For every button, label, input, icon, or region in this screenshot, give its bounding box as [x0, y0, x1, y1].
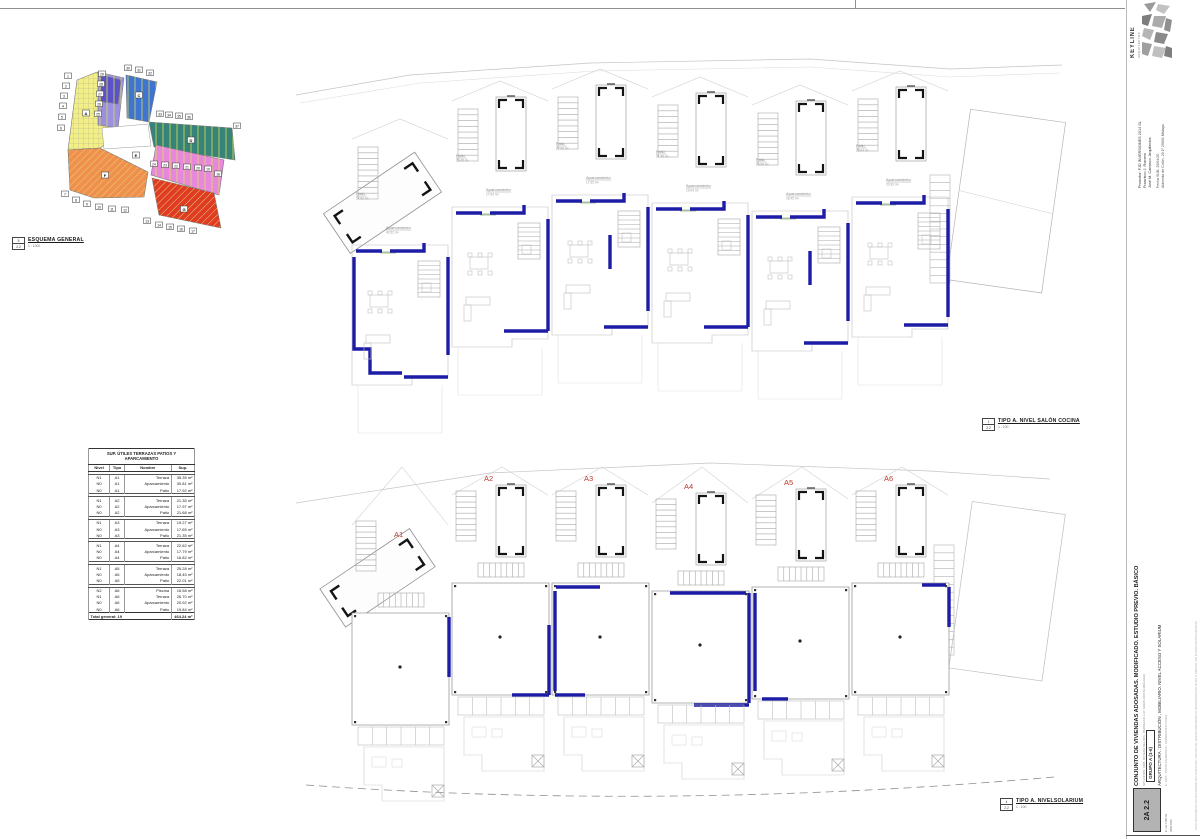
esquema-ref-box: 5 2.2: [12, 237, 25, 250]
logo-mosaic-icon: [1142, 2, 1172, 58]
svg-text:3: 3: [63, 94, 65, 98]
plan1-unit-a2: Patio23.45 m²Aparcamiento17.54 m²: [452, 81, 548, 395]
parking-space: [896, 86, 926, 161]
stairs: [878, 563, 924, 577]
sheet-top-tick: [855, 0, 856, 8]
siteplan-patio-central: [102, 124, 151, 149]
parking-space: [596, 84, 626, 159]
furniture: [772, 731, 802, 741]
plan-nivel-solarium: A1A2A3A4A5A6: [290, 455, 1070, 805]
svg-text:23.04 m²: 23.04 m²: [856, 149, 869, 153]
drawing-sheet: ABCDEFG123456789101112131415161718192021…: [0, 0, 1200, 839]
stairs: [656, 499, 676, 549]
parking-space: [896, 484, 926, 557]
furniture: [372, 757, 402, 767]
stairs: [556, 491, 576, 541]
siteplan-unit-number-3: 3: [61, 93, 68, 99]
table-header-row: NivelTipoNombreSup.: [89, 464, 195, 471]
unit-id-label: A3: [584, 474, 593, 483]
siteplan-unit-number-26: 26: [96, 101, 103, 107]
svg-text:E: E: [135, 153, 138, 158]
pergola: [758, 701, 844, 719]
shaft-x-box: [832, 759, 844, 771]
siteplan-unit-number-37: 37: [234, 123, 241, 129]
surface-areas-table: SUP. ÚTILES TERRAZAS PATIOS Y APARCAMIEN…: [88, 448, 195, 620]
siteplan-unit-number-17: 17: [190, 228, 197, 234]
terrain-line-2: [300, 67, 1060, 103]
table-header: Tipo: [110, 464, 125, 471]
stairs: [418, 261, 440, 297]
furniture: [864, 235, 931, 311]
svg-text:Aparcamiento: Aparcamiento: [586, 175, 611, 180]
table-row: N0A5Patio22.01 m²: [89, 577, 195, 584]
area-label: Aparcamiento40.52 m²: [386, 225, 411, 235]
adjacent-building-right: [947, 109, 1066, 293]
furniture: [872, 727, 902, 737]
stairs: [478, 563, 524, 577]
siteplan-unit-number-8: 8: [73, 197, 80, 203]
svg-text:11: 11: [110, 207, 114, 211]
sheet-top-border: [0, 8, 1125, 9]
area-label: Aparcamiento19.94 m²: [686, 183, 711, 193]
logo-block: KEYLINE ARQUITECTOS: [1130, 2, 1172, 58]
table-row: N0A3Patio21.35 m²: [89, 532, 195, 539]
table-row: N0A1Patio17.92 m²: [89, 487, 195, 494]
siteplan-unit-number-36: 36: [186, 114, 193, 120]
svg-text:16: 16: [179, 227, 183, 231]
svg-text:1: 1: [67, 74, 69, 78]
shaft-x-box: [932, 755, 944, 767]
siteplan-unit-number-4: 4: [60, 103, 67, 109]
room-center-dot: [598, 635, 601, 638]
svg-text:22: 22: [174, 164, 178, 168]
siteplan-unit-number-27: 27: [97, 91, 104, 97]
svg-text:C: C: [138, 93, 141, 98]
room-center-dot: [698, 643, 701, 646]
siteplan-unit-number-12: 12: [122, 207, 129, 213]
stairs: [678, 571, 724, 585]
highlight-walls: [556, 193, 648, 327]
table-row: N0A6Patio19.84 m²: [89, 606, 195, 613]
svg-text:30: 30: [126, 66, 130, 70]
table-total-row: Total general: 19464.24 m²: [89, 613, 195, 620]
area-label: Aparcamiento17.54 m²: [486, 187, 511, 197]
svg-text:6: 6: [60, 126, 62, 130]
area-label: Aparcamiento20.92 m²: [886, 177, 911, 187]
contact-line-1: Fecha SUB: 29/04/20: [1156, 62, 1160, 188]
furniture: [564, 233, 631, 309]
siteplan-zona-azul: C: [126, 75, 157, 122]
table-row: N0A2Patio21.68 m²: [89, 510, 195, 517]
parking-space: [496, 484, 526, 557]
logo-brand-text: KEYLINE: [1130, 2, 1136, 58]
siteplan-unit-number-13: 13: [144, 218, 151, 224]
siteplan-unit-number-34: 34: [166, 112, 173, 118]
plan2-ref-box: 4 2.2: [1000, 798, 1013, 811]
pergola: [658, 705, 744, 723]
siteplan-unit-number-9: 9: [84, 201, 91, 207]
siteplan-unit-number-31: 31: [136, 67, 143, 73]
parking-space: [596, 484, 626, 557]
plan2-ref-sheet: 2.2: [1001, 805, 1012, 810]
svg-text:Aparcamiento: Aparcamiento: [686, 183, 711, 188]
area-label: Aparcamiento18.45 m²: [786, 191, 811, 201]
pergola: [558, 697, 644, 715]
furniture: [572, 727, 602, 737]
siteplan-unit-number-7: 7: [62, 191, 69, 197]
furniture: [764, 249, 831, 325]
siteplan-unit-number-15: 15: [167, 224, 174, 230]
siteplan-unit-number-14: 14: [156, 222, 163, 228]
furniture: [672, 735, 702, 745]
svg-text:Patio: Patio: [356, 192, 365, 196]
svg-text:28: 28: [99, 82, 103, 86]
plan1-unit-a5: Patio20.09 m²Aparcamiento18.45 m²: [752, 85, 848, 399]
svg-text:23: 23: [163, 163, 167, 167]
sheet-number-box: 2A 2.2: [1133, 788, 1161, 832]
esquema-ref-sheet: 2.2: [13, 244, 24, 249]
svg-text:19.94 m²: 19.94 m²: [686, 189, 699, 193]
plan2-unit-a4: A4: [652, 482, 749, 779]
svg-text:17.54 m²: 17.54 m²: [486, 193, 499, 197]
siteplan-unit-number-5: 5: [59, 114, 66, 120]
adjacent-building-right: [949, 502, 1065, 681]
plan1-label: 1 2.2 TIPO A. NIVEL SALÓN COCINA 1 : 100: [982, 418, 1080, 431]
table-header: Nombre: [125, 464, 172, 471]
project-discipline: ARQUITECTURA : DISTRIBUCIÓN , MOBILIARIO…: [1157, 572, 1162, 786]
svg-text:35: 35: [177, 114, 181, 118]
sheet-note-2: ABR 2020: [1169, 790, 1173, 832]
svg-text:34: 34: [167, 113, 171, 117]
siteplan-unit-number-2: 2: [63, 83, 70, 89]
siteplan-unit-number-29: 29: [99, 71, 106, 77]
shaft-x-box: [432, 785, 444, 797]
parking-space: [696, 92, 726, 167]
svg-text:21: 21: [185, 165, 189, 169]
furniture: [364, 283, 431, 359]
siteplan-unit-number-32: 32: [147, 70, 154, 76]
svg-text:Patio: Patio: [556, 142, 565, 146]
esquema-general-siteplan: ABCDEFG123456789101112131415161718192021…: [8, 28, 268, 263]
siteplan-unit-number-24: 24: [151, 161, 158, 167]
adjacent-building: [323, 152, 441, 253]
table-row: N1A3Terraza19.27 m²: [89, 519, 195, 526]
sheet-bottom-border: [1126, 835, 1200, 836]
esquema-scale: 1 : 1000: [28, 244, 84, 248]
plan1-scale: 1 : 100: [998, 425, 1080, 429]
stairs: [818, 227, 840, 263]
legal-edge-text: ESTE DOCUMENTO ES PROPIEDAD DEL AUTOR DE…: [1194, 60, 1198, 830]
highlight-walls: [756, 209, 848, 343]
svg-text:7: 7: [64, 192, 66, 196]
siteplan-unit-number-18: 18: [215, 171, 222, 177]
plan1-unit-a6: Patio23.04 m²Aparcamiento20.92 m²: [852, 71, 948, 385]
stairs: [778, 567, 824, 581]
esquema-title: ESQUEMA GENERAL: [28, 237, 84, 243]
siteplan-unit-number-23: 23: [162, 162, 169, 168]
svg-text:Aparcamiento: Aparcamiento: [786, 191, 811, 196]
room-center-dot: [398, 665, 401, 668]
svg-text:24: 24: [152, 162, 156, 166]
unit-id-label: A1: [394, 530, 403, 539]
pergola: [358, 727, 444, 745]
plan1-ref-box: 1 2.2: [982, 418, 995, 431]
svg-text:10: 10: [97, 205, 101, 209]
plan-nivel-salon-cocina: Patio17.92 m²Aparcamiento40.52 m²Patio23…: [290, 55, 1070, 435]
stairs: [756, 495, 776, 545]
svg-text:Patio: Patio: [456, 154, 465, 158]
siteplan-unit-number-20: 20: [195, 165, 202, 171]
svg-text:D: D: [190, 138, 193, 143]
parking-space: [796, 100, 826, 175]
svg-text:29: 29: [100, 72, 104, 76]
project-note: E: 1/100 . COTAS EN METROS . SUPERFICIES…: [1164, 650, 1168, 786]
room-center-dot: [898, 635, 901, 638]
stairs: [718, 219, 740, 255]
unit-id-label: A6: [884, 474, 893, 483]
siteplan-unit-number-35: 35: [176, 113, 183, 119]
svg-text:Patio: Patio: [756, 158, 765, 162]
siteplan-unit-number-19: 19: [205, 166, 212, 172]
svg-text:27: 27: [98, 92, 102, 96]
plan2-title: TIPO A. NIVELSOLARIUM: [1016, 798, 1083, 804]
siteplan-unit-number-10: 10: [96, 204, 103, 210]
table-row: N1A1Terraza35.35 m²: [89, 474, 195, 481]
table-row: N1A5Terraza25.28 m²: [89, 564, 195, 571]
table-row: N1A4Terraza22.62 m²: [89, 542, 195, 549]
room-center-dot: [798, 639, 801, 642]
sheet-note-1: E: var / DIN A1: [1164, 790, 1168, 832]
svg-text:17: 17: [191, 229, 195, 233]
titleblock-divider: [1126, 0, 1127, 839]
siteplan-unit-number-28: 28: [98, 81, 105, 87]
svg-text:25: 25: [96, 112, 100, 116]
svg-text:26: 26: [97, 102, 101, 106]
room-center-dot: [498, 635, 501, 638]
plan2-unit-a3: A3: [552, 474, 649, 771]
svg-text:9: 9: [86, 202, 88, 206]
svg-text:18: 18: [216, 172, 220, 176]
svg-text:A: A: [85, 111, 88, 116]
table-row: N2A6Piscina16.58 m²: [89, 587, 195, 594]
parking-space: [696, 492, 726, 565]
svg-text:32: 32: [148, 71, 152, 75]
table-row: N1A2Terraza21.35 m²: [89, 497, 195, 504]
plan2-unit-a2: A2: [452, 474, 549, 771]
siteplan-unit-number-25: 25: [95, 111, 102, 117]
plan1-unit-a4: Patio21.35 m²Aparcamiento19.94 m²: [652, 77, 748, 391]
svg-text:18.45 m²: 18.45 m²: [786, 197, 799, 201]
stairs: [456, 491, 476, 541]
area-label: Aparcamiento17.65 m²: [586, 175, 611, 185]
stairs: [518, 223, 540, 259]
svg-text:Aparcamiento: Aparcamiento: [886, 177, 911, 182]
siteplan-zona-violeta-int: [101, 75, 121, 104]
sheet-number: 2A 2.2: [1144, 800, 1151, 820]
siteplan-unit-number-21: 21: [184, 164, 191, 170]
siteplan-unit-number-16: 16: [178, 226, 185, 232]
promotor-line-2: Francisco J. Romero: [1143, 62, 1147, 188]
plan2-unit-a6: A6: [852, 474, 949, 771]
plan2-scale: 1 : 100: [1016, 805, 1083, 809]
parking-space: [796, 488, 826, 561]
siteplan-unit-number-33: 33: [157, 111, 164, 117]
svg-text:Aparcamiento: Aparcamiento: [486, 187, 511, 192]
svg-text:21.35 m²: 21.35 m²: [656, 155, 669, 159]
pergola: [458, 697, 544, 715]
plan1-ref-sheet: 2.2: [983, 425, 994, 430]
svg-text:23.45 m²: 23.45 m²: [456, 159, 469, 163]
svg-text:Patio: Patio: [856, 144, 865, 148]
stairs: [618, 211, 640, 247]
shaft-x-box: [532, 755, 544, 767]
terrain-line: [296, 463, 1050, 503]
svg-text:20: 20: [196, 166, 200, 170]
table-header: Nivel: [89, 464, 110, 471]
promotor-line-3: José M. Carrasco. Arquitectos: [1148, 62, 1152, 188]
svg-text:27.05 m²: 27.05 m²: [556, 147, 569, 151]
unit-id-label: A2: [484, 474, 493, 483]
table-title: SUP. ÚTILES TERRAZAS PATIOS Y APARCAMIEN…: [89, 449, 195, 465]
svg-text:36: 36: [187, 115, 191, 119]
svg-text:12: 12: [123, 208, 127, 212]
logo-sub-text: ARQUITECTOS: [1137, 2, 1141, 58]
project-group-box: GRUPO A (1-6): [1146, 730, 1155, 782]
svg-text:Aparcamiento: Aparcamiento: [386, 225, 411, 230]
boundary-dashed-line: [306, 777, 1054, 796]
svg-text:17.65 m²: 17.65 m²: [586, 181, 599, 185]
stairs: [856, 491, 876, 541]
roof-line: [352, 467, 448, 525]
siteplan-unit-number-30: 30: [125, 65, 132, 71]
svg-text:5: 5: [61, 115, 63, 119]
promotor-line-1: Promotor: FJD INVERSIONES 2014 SL: [1138, 62, 1142, 188]
siteplan-unit-number-6: 6: [58, 125, 65, 131]
furniture: [664, 241, 731, 317]
table-row: N0A4Patio16.82 m²: [89, 555, 195, 562]
svg-text:17.92 m²: 17.92 m²: [356, 197, 369, 201]
svg-text:40.52 m²: 40.52 m²: [386, 231, 399, 235]
unit-id-label: A5: [784, 478, 793, 487]
unit-id-label: A4: [684, 482, 693, 491]
plan2-label: 4 2.2 TIPO A. NIVELSOLARIUM 1 : 100: [1000, 798, 1083, 811]
stairs: [918, 213, 940, 249]
esquema-general-label: 5 2.2 ESQUEMA GENERAL 1 : 1000: [12, 237, 84, 250]
siteplan-unit-number-1: 1: [65, 73, 72, 79]
svg-text:2: 2: [65, 84, 67, 88]
svg-text:G: G: [182, 207, 185, 212]
svg-text:20.09 m²: 20.09 m²: [756, 163, 769, 167]
svg-text:8: 8: [75, 198, 77, 202]
furniture: [464, 245, 531, 321]
svg-text:31: 31: [137, 68, 141, 72]
shaft-x-box: [632, 755, 644, 767]
svg-text:20.92 m²: 20.92 m²: [886, 183, 899, 187]
project-title-main: CONJUNTO DE VIVIENDAS ADOSADAS. MODIFICA…: [1134, 558, 1140, 786]
svg-text:33: 33: [158, 112, 162, 116]
siteplan-unit-number-11: 11: [109, 206, 116, 212]
table-header: Sup.: [171, 464, 194, 471]
plan2-unit-a5: A5: [752, 478, 849, 775]
siteplan-unit-number-22: 22: [173, 163, 180, 169]
svg-text:13: 13: [145, 219, 149, 223]
pergola: [858, 697, 944, 715]
shaft-x-box: [732, 763, 744, 775]
svg-text:14: 14: [157, 223, 161, 227]
plan1-title: TIPO A. NIVEL SALÓN COCINA: [998, 418, 1080, 424]
svg-text:19: 19: [206, 167, 210, 171]
svg-text:Patio: Patio: [656, 150, 665, 154]
furniture: [472, 727, 502, 737]
svg-text:15: 15: [168, 225, 172, 229]
stairs: [578, 563, 624, 577]
parking-space: [496, 96, 526, 171]
adjacent-building: [320, 529, 435, 628]
plan1-unit-a3: Patio27.05 m²Aparcamiento17.65 m²: [552, 69, 648, 383]
contact-line-2: Alameda de Colón, 29 1º 29001 Málaga: [1161, 62, 1165, 188]
svg-text:37: 37: [235, 124, 239, 128]
svg-text:4: 4: [62, 104, 64, 108]
